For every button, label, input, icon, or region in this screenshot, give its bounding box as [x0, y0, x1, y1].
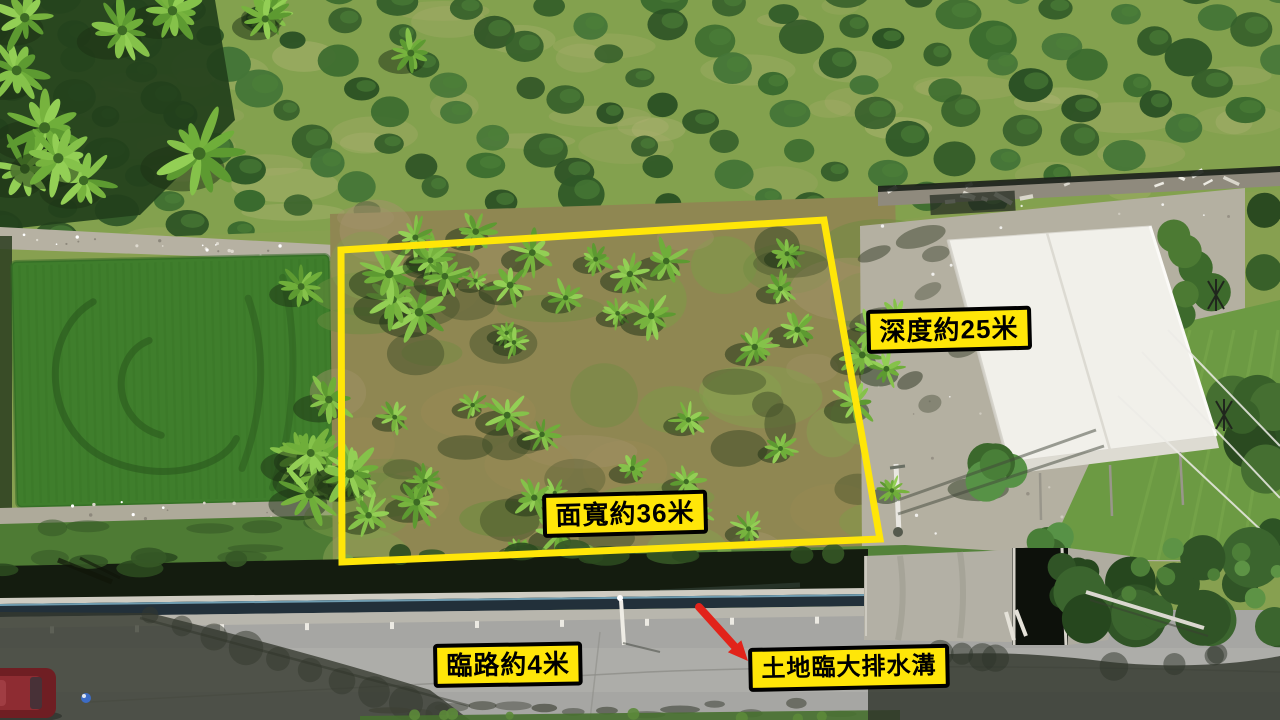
aerial-photo: 深度約25米 面寬約36米 臨路約4米 土地臨大排水溝	[0, 0, 1280, 720]
aerial-photo-canvas	[0, 0, 1280, 720]
depth-label: 深度約25米	[866, 306, 1032, 354]
road-label: 臨路約4米	[433, 641, 583, 688]
frontage-label: 面寬約36米	[542, 490, 708, 538]
drainage-label: 土地臨大排水溝	[748, 644, 950, 692]
photo-layers	[0, 0, 1280, 720]
